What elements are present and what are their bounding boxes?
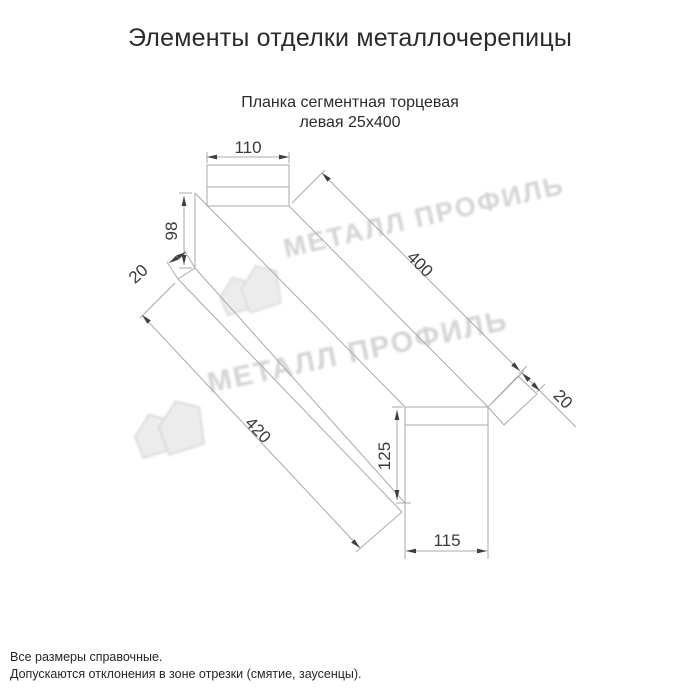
footnote-line1: Все размеры справочные. bbox=[10, 650, 162, 664]
dimension-20-far: 20 bbox=[519, 366, 576, 427]
far-flange bbox=[488, 376, 537, 425]
dimension-115: 115 bbox=[405, 531, 488, 559]
dim-label-400: 400 bbox=[403, 247, 436, 280]
dimension-110: 110 bbox=[207, 138, 289, 163]
near-end-top-face bbox=[207, 165, 289, 206]
dim-label-420: 420 bbox=[241, 413, 274, 447]
dim-label-20-near: 20 bbox=[125, 261, 152, 288]
footnote-line2: Допускаются отклонения в зоне отрезки (с… bbox=[10, 667, 362, 681]
strip-body bbox=[178, 193, 488, 512]
dim-label-98: 98 bbox=[162, 222, 181, 241]
dim-label-110: 110 bbox=[234, 138, 261, 157]
dimension-125: 125 bbox=[375, 407, 411, 503]
dimension-98: 98 bbox=[162, 193, 192, 268]
far-end-face bbox=[405, 407, 488, 551]
dimension-400: 400 bbox=[292, 170, 524, 404]
dim-label-115: 115 bbox=[433, 531, 460, 550]
drawing-page: Элементы отделки металлочерепицы Планка … bbox=[0, 0, 700, 700]
dimension-420: 420 bbox=[140, 283, 402, 552]
technical-drawing: 110 98 20 400 20 bbox=[0, 0, 700, 700]
dim-label-125: 125 bbox=[375, 442, 394, 470]
dim-label-20-far: 20 bbox=[549, 386, 576, 413]
